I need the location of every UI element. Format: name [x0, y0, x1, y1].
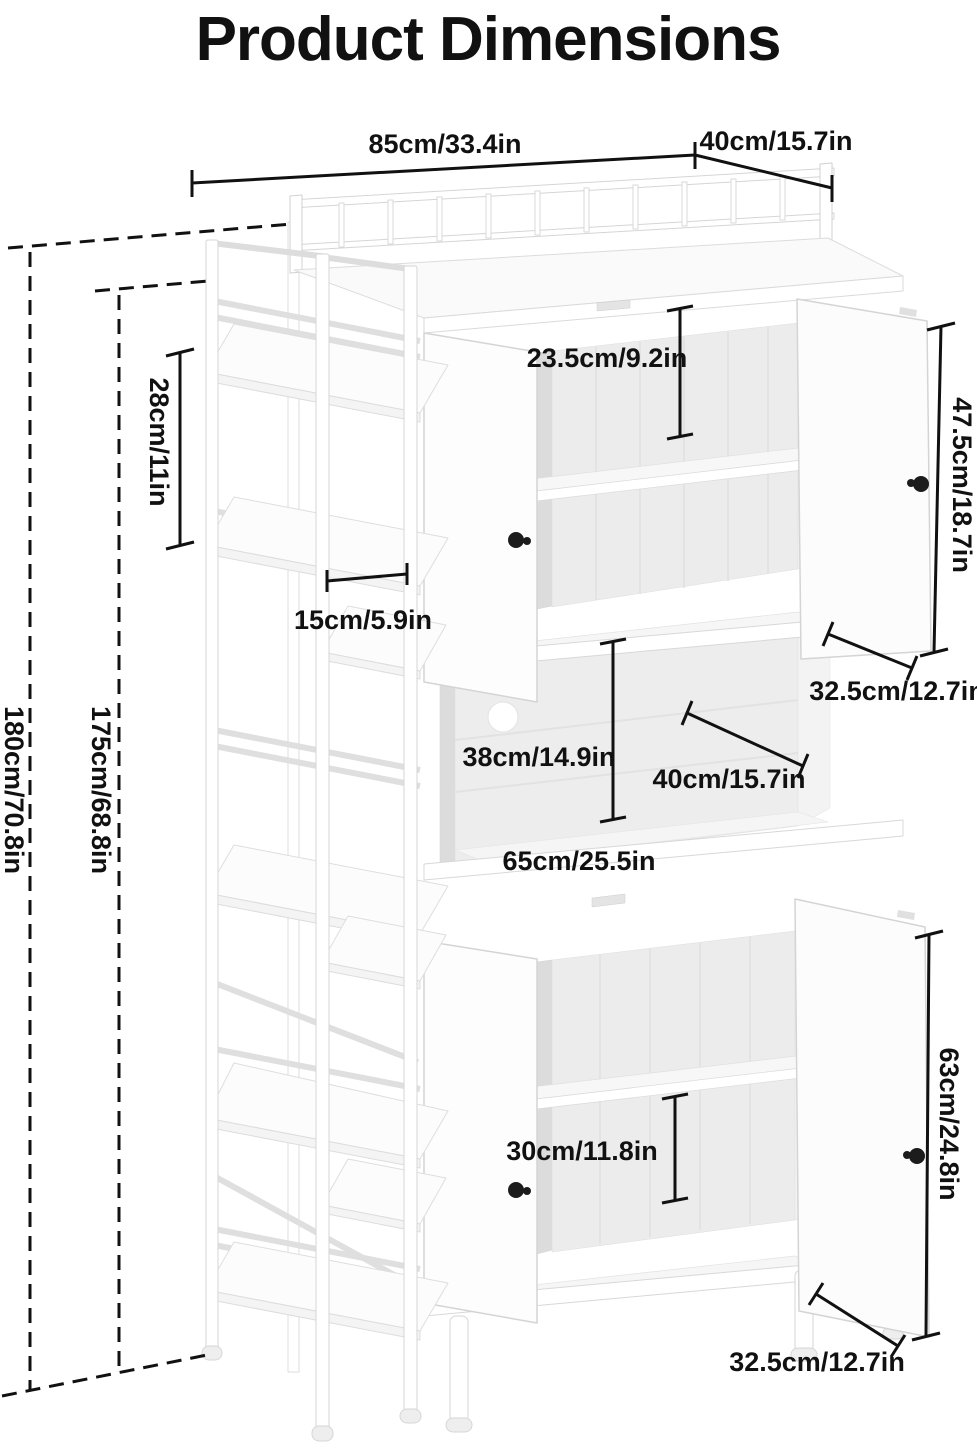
lower-right-door [795, 899, 929, 1337]
product-dimensions-diagram: Product Dimensions [0, 0, 977, 1448]
label-lower-door-width: 32.5cm/12.7in [729, 1347, 905, 1377]
label-top-width: 85cm/33.4in [368, 129, 521, 159]
label-upper-door-height: 47.5cm/18.7in [947, 397, 977, 573]
door-knob [909, 1148, 925, 1164]
side-rack [202, 240, 448, 1441]
label-lower-compartment: 30cm/11.8in [506, 1136, 658, 1166]
leader-floor [2, 1354, 212, 1396]
leader-total-height [8, 224, 292, 248]
cable-hole [488, 702, 518, 732]
door-knob [913, 476, 929, 492]
label-side-shelf-gap: 28cm/11in [144, 377, 174, 506]
label-upper-compartment: 23.5cm/9.2in [527, 343, 688, 373]
hinge-plate [897, 910, 915, 920]
label-lower-door-height: 63cm/24.8in [934, 1047, 964, 1200]
hinge-plate [899, 307, 917, 317]
page-title: Product Dimensions [196, 5, 781, 74]
label-top-depth: 40cm/15.7in [699, 126, 852, 156]
lower-left-door [424, 941, 537, 1323]
label-middle-width: 65cm/25.5in [502, 846, 655, 876]
label-middle-depth: 40cm/15.7in [652, 764, 805, 794]
label-total-height: 180cm/70.8in [0, 706, 29, 874]
door-knob [508, 532, 524, 548]
label-frame-height: 175cm/68.8in [86, 706, 116, 874]
label-side-shelf-depth: 15cm/5.9in [294, 605, 432, 635]
upper-left-door [424, 333, 537, 702]
railing-right-post [820, 163, 832, 241]
leader-frame-height [95, 281, 208, 291]
label-middle-height: 38cm/14.9in [462, 742, 615, 772]
label-upper-door-width: 32.5cm/12.7in [809, 676, 977, 706]
railing-left-post [290, 195, 302, 273]
upper-right-door [797, 299, 931, 659]
door-knob [508, 1182, 524, 1198]
